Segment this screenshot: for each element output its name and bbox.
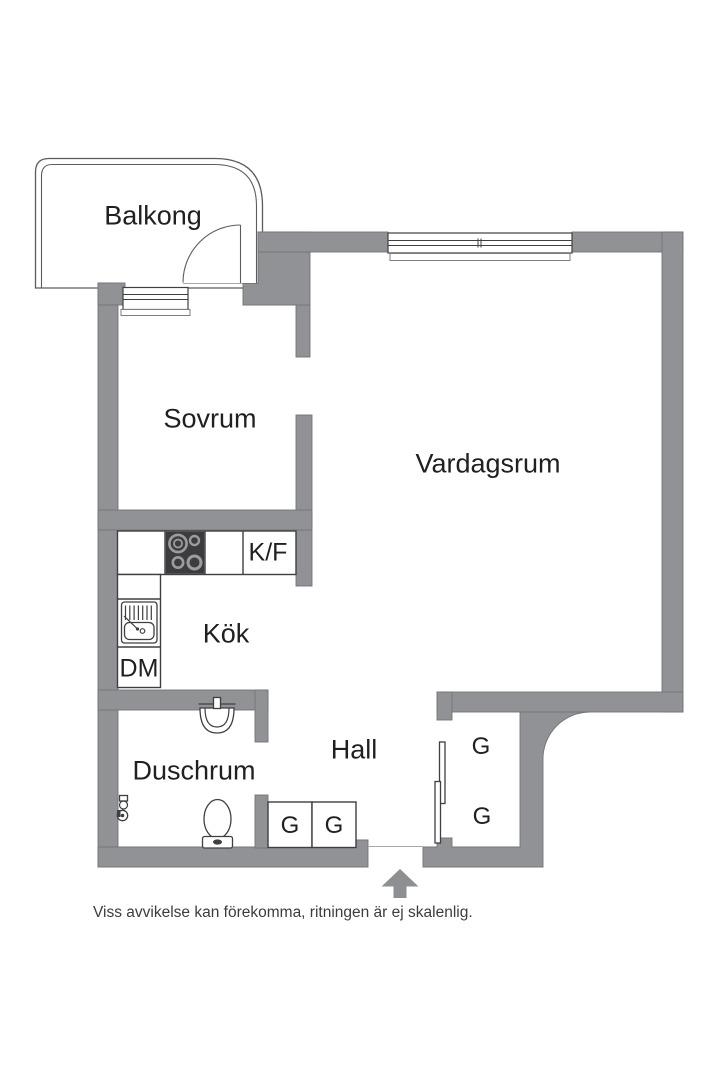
room-label-vardagsrum: Vardagsrum	[415, 451, 560, 478]
top-wall-left-of-window	[258, 232, 388, 252]
duschrum-right-wall-upper	[255, 690, 268, 742]
fridge-freezer-label: K/F	[249, 541, 288, 566]
bottom-right-wall-curved	[423, 712, 590, 867]
disclaimer-text: Viss avvikelse kan förekomma, ritningen …	[93, 904, 473, 922]
left-exterior-wall	[98, 283, 118, 867]
closet-label: G	[325, 814, 344, 838]
vardagsrum-window-frame	[388, 233, 572, 253]
sovrum-vardagsrum-partition	[296, 305, 310, 357]
kok-vardagsrum-wall	[296, 415, 312, 586]
duschrum-right-wall-lower	[255, 795, 268, 848]
washbasin-faucet	[214, 698, 221, 709]
sink-icon	[122, 602, 158, 643]
sliding-door-leaf	[435, 782, 441, 844]
room-label-kok: Kök	[203, 621, 250, 648]
balcony-wall-left-piece	[98, 283, 125, 305]
wardrobe-door-jamb-top	[437, 692, 452, 720]
vardagsrum-bottom-wall	[437, 692, 683, 712]
wardrobe-sliding-doors	[435, 742, 445, 843]
shower-mixer-dial-center	[121, 814, 125, 818]
sink-basin	[125, 623, 155, 640]
right-exterior-wall	[662, 232, 683, 712]
toilet-button	[213, 839, 222, 844]
sink-faucet-tip	[136, 627, 139, 630]
sovrum-window-sill	[121, 310, 190, 316]
shower-mixer-spout	[117, 810, 121, 817]
vardagsrum-window-sill	[390, 254, 570, 261]
duschrum-top-wall	[98, 690, 268, 710]
sovrum-kok-wall	[98, 510, 312, 530]
toilet-icon	[203, 800, 233, 849]
shower-mixer-icon	[117, 796, 128, 821]
room-label-hall: Hall	[331, 737, 378, 764]
room-label-duschrum: Duschrum	[132, 758, 255, 785]
room-label-sovrum: Sovrum	[163, 406, 256, 433]
sovrum-window-frame	[123, 288, 188, 310]
vardagsrum-window	[388, 233, 572, 261]
closet-label: G	[281, 814, 300, 838]
floor-plan: Balkong Sovrum Vardagsrum Kök Hall Dusch…	[0, 0, 720, 1080]
shower-mixer-knob	[120, 801, 128, 809]
sink-drainboard-hatch	[126, 606, 152, 621]
room-label-balkong: Balkong	[104, 203, 202, 230]
toilet-bowl	[204, 800, 231, 839]
closet-label: G	[473, 805, 492, 829]
dishwasher-label: DM	[120, 657, 159, 682]
entrance-arrow-icon	[382, 869, 419, 898]
stove-icon	[166, 532, 205, 574]
closet-label: G	[472, 735, 491, 759]
sovrum-window	[121, 288, 190, 316]
shower-mixer-top	[120, 796, 128, 802]
